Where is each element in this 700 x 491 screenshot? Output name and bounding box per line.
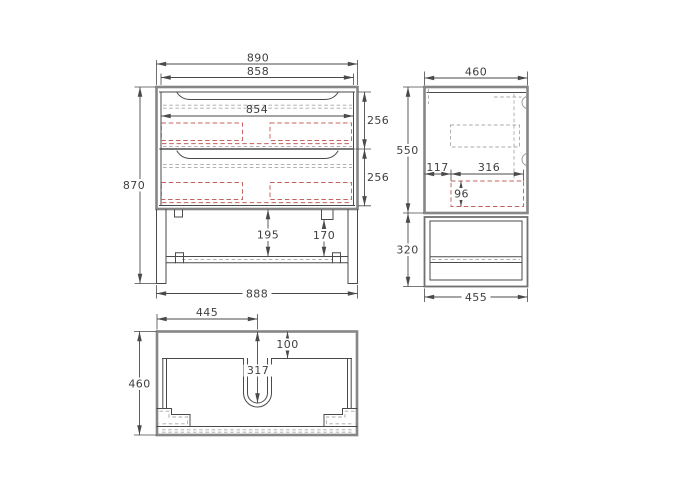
dim-front-top-width: 858 <box>247 65 269 78</box>
side-base-outline <box>425 217 528 287</box>
dim-base-inner-height: 195 <box>257 229 279 242</box>
dim-drawer1-height: 256 <box>367 114 389 127</box>
drawer1-handle-recess <box>177 93 338 100</box>
drawer1-hidden-box-right <box>270 123 352 141</box>
bottom-left-wall <box>163 359 167 409</box>
bottom-corner-block-right-hidden <box>327 411 355 424</box>
side-cabinet-outline <box>425 87 528 213</box>
side-dimensions: 460 550 117 316 96 320 455 <box>394 66 528 305</box>
side-handle2-profile <box>522 154 527 166</box>
dim-cutout-offset: 117 <box>426 161 448 174</box>
dim-front-overall-width: 890 <box>247 52 269 65</box>
side-view: 460 550 117 316 96 320 455 <box>394 66 528 305</box>
front-right-step <box>322 210 334 220</box>
drawer2-hidden-box-right <box>270 183 352 200</box>
front-left-step <box>175 210 183 217</box>
front-right-leg <box>348 210 358 284</box>
dim-cutout-depth: 317 <box>247 364 269 377</box>
side-base-inner <box>430 221 522 280</box>
front-shelf-clip-left <box>176 253 184 263</box>
front-left-leg <box>157 210 167 284</box>
dim-cutout-width: 316 <box>478 161 500 174</box>
dim-cutout-height: 96 <box>454 188 469 201</box>
bottom-back-rail-hidden <box>162 430 352 432</box>
dim-base-height: 320 <box>396 244 418 257</box>
bottom-view: 445 317 100 460 <box>126 306 358 435</box>
dim-drawer2-height: 256 <box>367 171 389 184</box>
bottom-corner-block-left-hidden <box>160 411 188 424</box>
dim-front-overall-height: 870 <box>123 179 145 192</box>
drawer2-handle-recess <box>177 151 338 159</box>
drawer2-hidden-top <box>163 164 352 167</box>
front-shelf-clip-right <box>333 253 341 263</box>
drawer2-hidden-box-left <box>162 183 243 200</box>
dim-base-width: 888 <box>246 288 268 301</box>
bottom-right-wall <box>348 359 352 409</box>
bottom-outline <box>157 332 357 436</box>
dim-front-drawer-width: 854 <box>246 103 268 116</box>
technical-drawing-page: 890 858 854 256 256 870 195 170 8 <box>0 0 700 491</box>
bottom-dimensions: 445 317 100 460 <box>126 306 302 435</box>
dim-front-rail-depth: 100 <box>276 338 298 351</box>
dim-shelf-height: 170 <box>313 229 335 242</box>
dim-bottom-depth: 460 <box>128 378 150 391</box>
dim-side-depth: 460 <box>465 66 487 79</box>
dim-center-offset: 445 <box>196 306 218 319</box>
vanity-technical-drawing: 890 858 854 256 256 870 195 170 8 <box>0 0 700 491</box>
front-view: 890 858 854 256 256 870 195 170 8 <box>120 52 389 301</box>
drawer1-hidden-box-left <box>162 123 243 141</box>
dim-base-depth: 455 <box>465 291 487 304</box>
dim-cabinet-height: 550 <box>396 144 418 157</box>
side-handle1-profile <box>522 97 527 109</box>
side-hidden-drawer-box <box>451 125 520 147</box>
